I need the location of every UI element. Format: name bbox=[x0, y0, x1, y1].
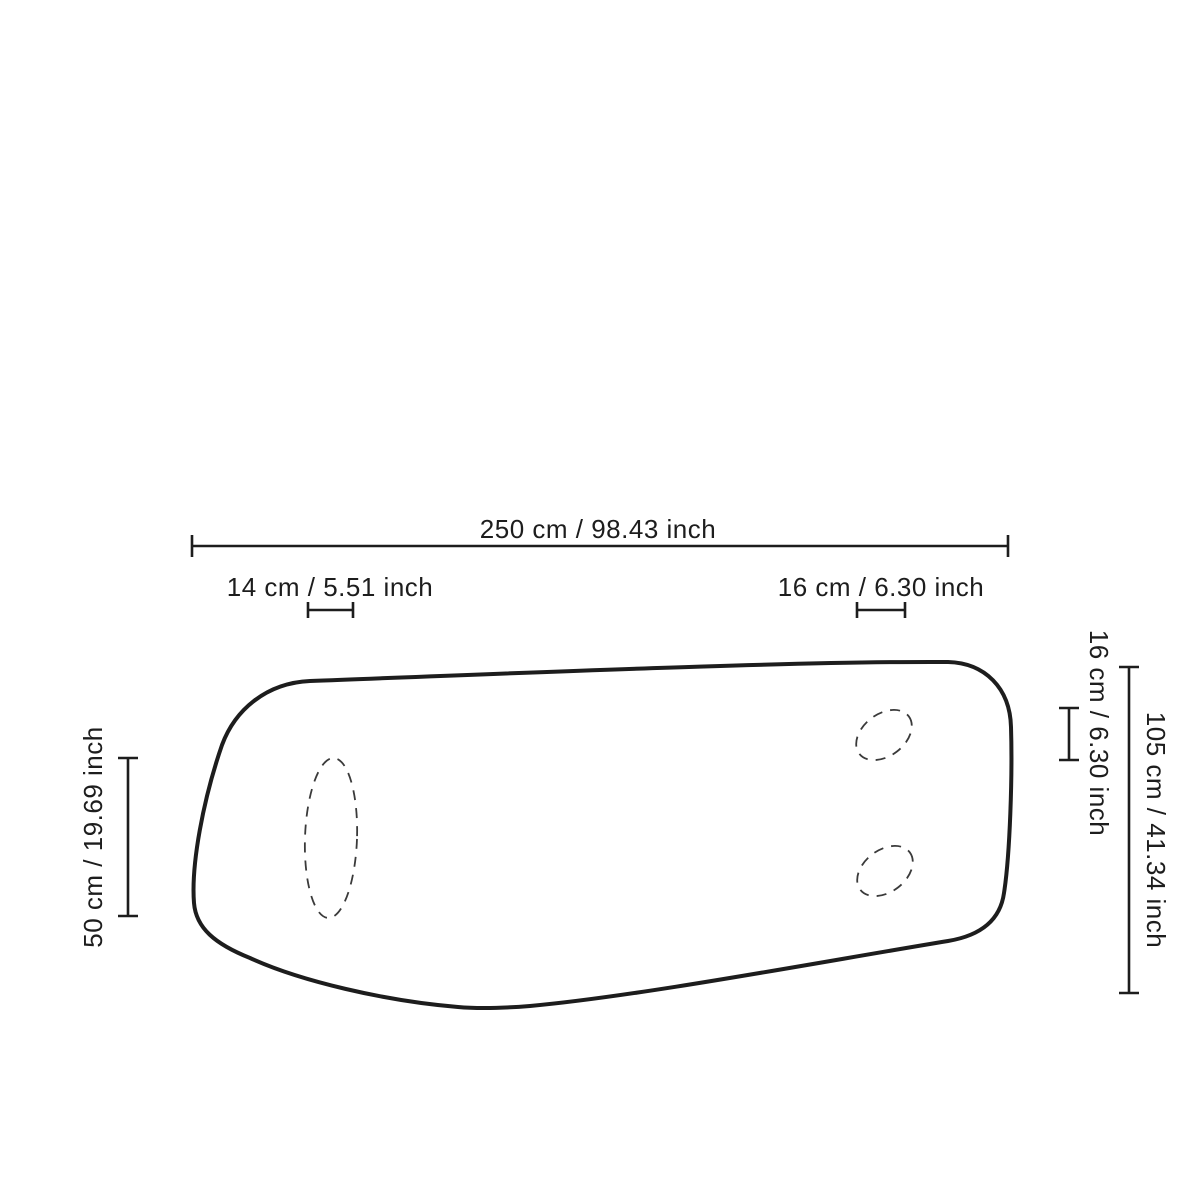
dim-left-cutout-height: 50 cm / 19.69 inch bbox=[78, 726, 138, 947]
cutouts bbox=[302, 700, 922, 919]
dim-total-width: 250 cm / 98.43 inch bbox=[192, 514, 1008, 557]
product-outline bbox=[194, 662, 1012, 1008]
dim-total-height-label: 105 cm / 41.34 inch bbox=[1141, 712, 1171, 948]
right-upper-cutout-ellipse bbox=[847, 700, 922, 771]
dim-right-cutout-width-label: 16 cm / 6.30 inch bbox=[778, 572, 985, 602]
dim-left-cutout-width-line bbox=[308, 602, 353, 618]
dim-total-width-label: 250 cm / 98.43 inch bbox=[480, 514, 716, 544]
right-lower-cutout-ellipse bbox=[848, 836, 923, 907]
dim-right-cutout-width: 16 cm / 6.30 inch bbox=[778, 572, 985, 618]
dimension-diagram: 250 cm / 98.43 inch 14 cm / 5.51 inch 16… bbox=[0, 0, 1200, 1200]
dim-right-cutout-height-label: 16 cm / 6.30 inch bbox=[1084, 630, 1114, 837]
dim-total-height-line bbox=[1119, 667, 1139, 993]
dim-total-height: 105 cm / 41.34 inch bbox=[1119, 667, 1171, 993]
dim-right-cutout-height-line bbox=[1059, 708, 1079, 760]
dim-left-cutout-width-label: 14 cm / 5.51 inch bbox=[227, 572, 434, 602]
left-cutout-ellipse bbox=[302, 757, 360, 919]
diagram-canvas: 250 cm / 98.43 inch 14 cm / 5.51 inch 16… bbox=[0, 0, 1200, 1200]
dim-right-cutout-width-line bbox=[857, 602, 905, 618]
dim-right-cutout-height: 16 cm / 6.30 inch bbox=[1059, 630, 1114, 837]
dim-left-cutout-height-label: 50 cm / 19.69 inch bbox=[78, 726, 108, 947]
dim-left-cutout-width: 14 cm / 5.51 inch bbox=[227, 572, 434, 618]
dim-left-cutout-height-line bbox=[118, 758, 138, 916]
